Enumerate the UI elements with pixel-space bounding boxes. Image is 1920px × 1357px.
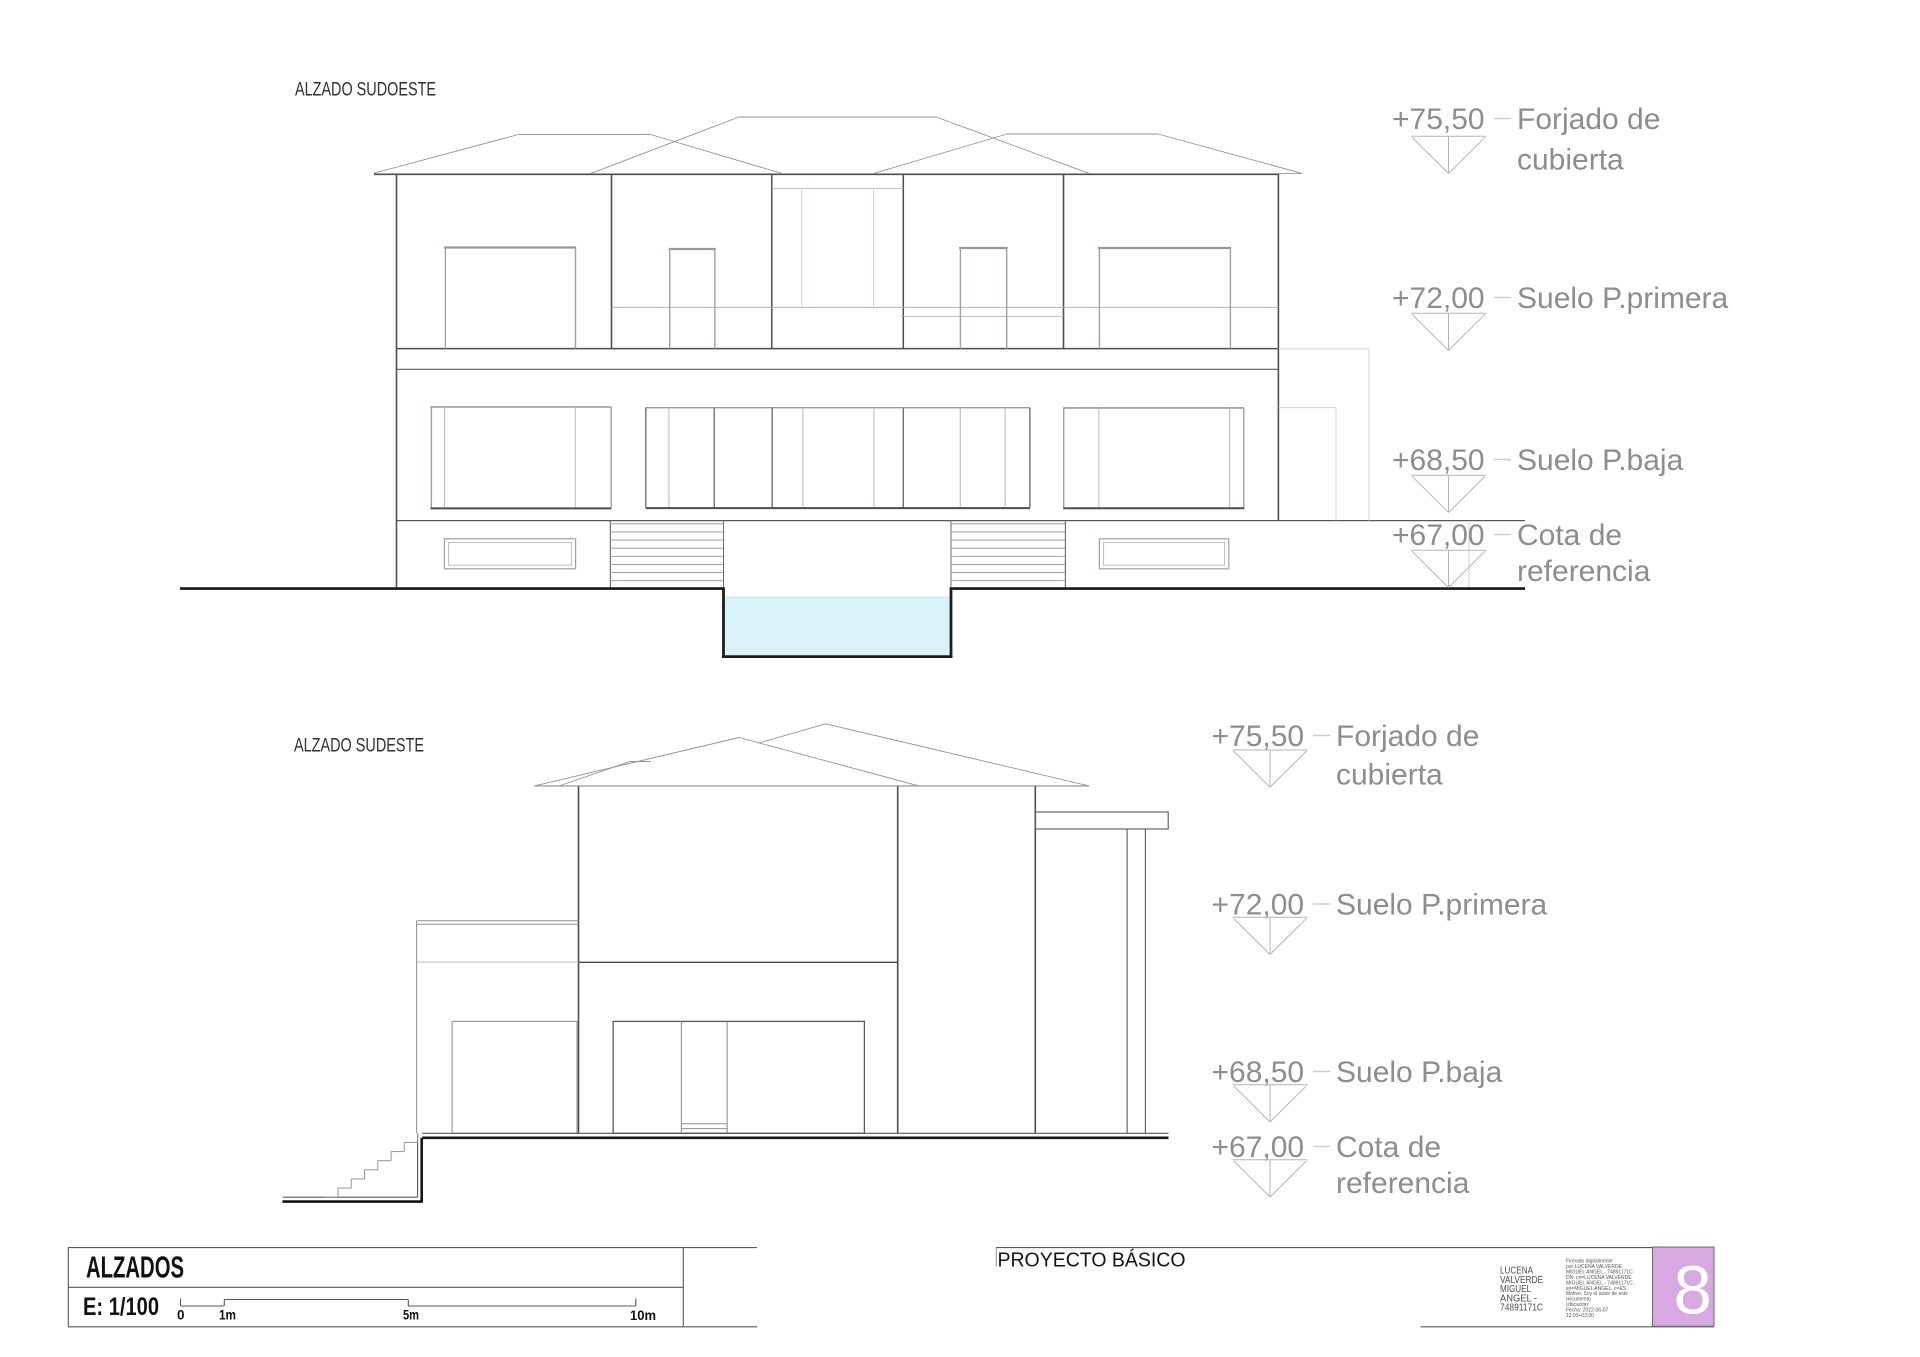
svg-text:12:03+02:00: 12:03+02:00: [1566, 1313, 1594, 1319]
svg-text:ALZADOS: ALZADOS: [86, 1250, 184, 1285]
svg-text:cubierta: cubierta: [1517, 144, 1624, 177]
svg-text:Forjado de: Forjado de: [1517, 103, 1660, 136]
svg-text:+75,50: +75,50: [1392, 103, 1485, 136]
svg-text:Cota de: Cota de: [1336, 1131, 1441, 1164]
svg-text:10m: 10m: [630, 1308, 656, 1323]
svg-text:+67,00: +67,00: [1212, 1131, 1305, 1164]
svg-text:Suelo P.baja: Suelo P.baja: [1336, 1056, 1503, 1089]
svg-text:ALZADO SUDESTE: ALZADO SUDESTE: [294, 736, 424, 757]
svg-text:0: 0: [177, 1308, 185, 1323]
svg-text:+68,50: +68,50: [1392, 444, 1485, 477]
svg-text:Suelo P.primera: Suelo P.primera: [1336, 889, 1548, 922]
svg-text:8: 8: [1674, 1252, 1712, 1329]
svg-text:+72,00: +72,00: [1392, 282, 1485, 315]
svg-text:Suelo P.primera: Suelo P.primera: [1517, 282, 1729, 315]
svg-text:Suelo P.baja: Suelo P.baja: [1517, 444, 1684, 477]
svg-text:1m: 1m: [219, 1308, 236, 1323]
svg-text:5m: 5m: [403, 1308, 419, 1323]
svg-text:referencia: referencia: [1336, 1167, 1470, 1200]
svg-text:E: 1/100: E: 1/100: [83, 1293, 159, 1321]
svg-text:ALZADO SUDOESTE: ALZADO SUDOESTE: [295, 80, 436, 101]
svg-text:Forjado de: Forjado de: [1336, 720, 1479, 753]
svg-text:74891171C: 74891171C: [1500, 1303, 1543, 1314]
svg-text:+75,50: +75,50: [1212, 720, 1305, 753]
svg-text:+68,50: +68,50: [1212, 1056, 1305, 1089]
svg-text:+67,00: +67,00: [1392, 519, 1485, 552]
svg-text:Cota de: Cota de: [1517, 519, 1622, 552]
svg-text:cubierta: cubierta: [1336, 759, 1443, 792]
svg-text:PROYECTO BÁSICO: PROYECTO BÁSICO: [998, 1249, 1186, 1272]
svg-text:referencia: referencia: [1517, 555, 1651, 588]
svg-text:+72,00: +72,00: [1212, 889, 1305, 922]
